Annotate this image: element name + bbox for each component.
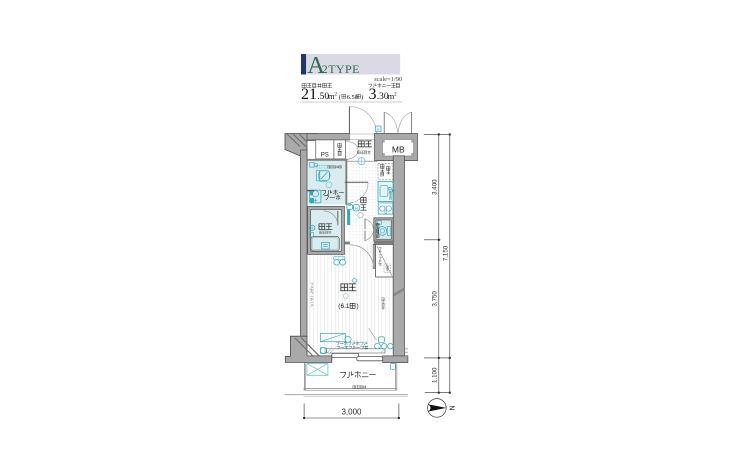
svg-text:2TYPE: 2TYPE	[322, 62, 360, 76]
svg-text:3,400: 3,400	[432, 179, 439, 195]
svg-text:N: N	[447, 405, 454, 410]
svg-text:3,750: 3,750	[432, 291, 439, 307]
svg-text:H: H	[355, 206, 358, 211]
svg-text:3: 3	[369, 86, 377, 103]
svg-text:7,150: 7,150	[443, 245, 450, 261]
svg-text:6.50: 6.50	[347, 94, 358, 101]
svg-text:): )	[361, 94, 363, 101]
svg-text:n: n	[377, 126, 379, 131]
svg-text:PS: PS	[321, 152, 329, 158]
svg-text:(: (	[339, 94, 341, 101]
svg-text:1,100: 1,100	[432, 367, 439, 383]
svg-text:MB: MB	[392, 144, 405, 154]
svg-text:3,000: 3,000	[341, 407, 362, 416]
svg-text:scale=1/90: scale=1/90	[374, 76, 402, 83]
svg-text:): )	[357, 303, 359, 310]
svg-text:(6.1: (6.1	[338, 303, 350, 310]
svg-text:21: 21	[301, 86, 317, 103]
